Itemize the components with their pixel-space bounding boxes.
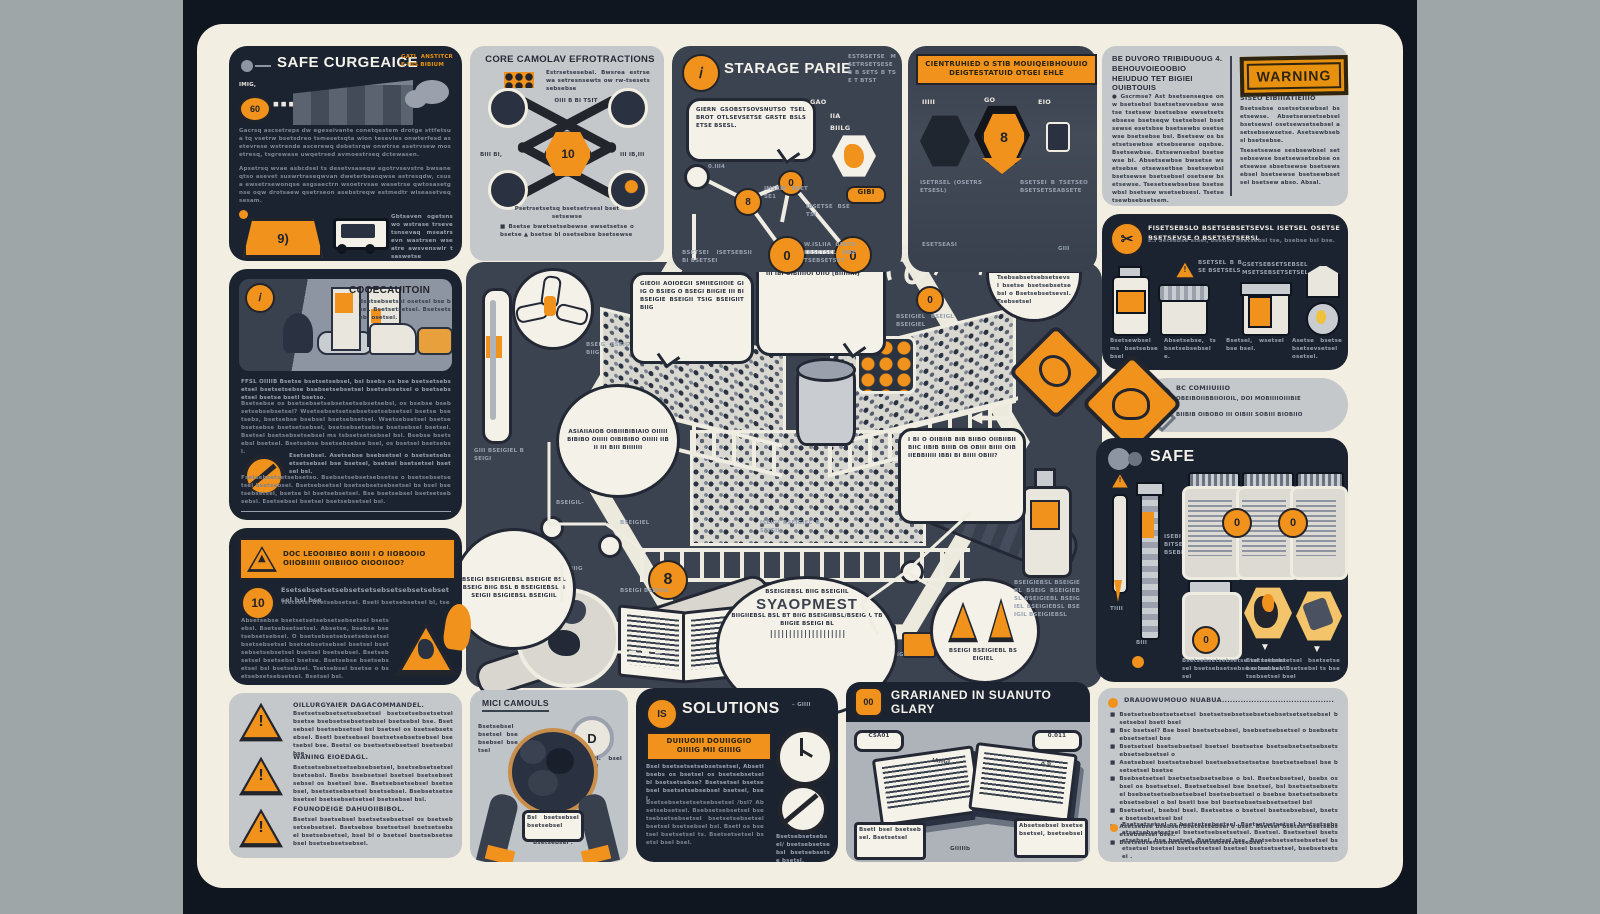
bullet-icon-2: ■ [1110,728,1115,744]
panel2-label-left: BIII BI, [480,152,502,160]
panel12-label-plate: Bsl bsetsebsel bsetsebsel [522,810,584,842]
panel13-paragraph-2: Bsetsebsetsetsetsebsetsel /bsl? Absetseb… [646,800,764,848]
panel1-badge: 60 [239,96,271,122]
worker-figure [283,313,313,353]
doc-callout-right-text: Absetsebsel bsetsebsetsel, bsetsebsel [1017,821,1085,841]
panel13-caption: Bsetsebsetsebsel/ bsetsebsetse bsl bsets… [776,834,830,866]
panel4-funnel-icon [982,158,1022,174]
panel8-dot-1 [1108,448,1130,470]
doc-callout-left-text: Bsetl bsel bsetsebsel. Bsetsetsel [857,825,923,845]
panel3-foot: BSETSEI ISETSEBSII BI BSETSEI [682,250,752,266]
panel12-caption: Bsetsebsel . [528,840,578,848]
footer-orange-bullet [1110,824,1118,832]
panel-solutions: IS SOLUTIONS – GIIII DUIIUOIII DOUIIGGIO… [636,688,838,862]
panel8-syr-label-2: BIII [1136,640,1162,648]
panel14-mid-tag: GIIIIIb [950,846,970,854]
cross-cluster-icon [504,72,534,88]
bottle1-label [1116,290,1146,314]
panel5-heading-2: BEHOUVOIEOOBIO [1112,64,1224,74]
panel1-tag: IMIG, [239,82,256,90]
panel9-paragraph-1: FFSL OIIIIB Bsetse bsetsetsebsel, bsl bs… [241,379,451,403]
panel1-title: SAFE CURGEAICE [277,54,418,71]
bullet-icon-4: ■ [1110,760,1115,776]
bullet-icon-1: ■ [1110,712,1115,728]
jar2-label [1248,296,1272,328]
connector-lines [466,262,1102,688]
panel3-node-orange-3: 0 [768,236,806,274]
panel8-syringe-band [1142,512,1154,538]
doc-callout-right: Absetsebsel bsetsebsetsel, bsetsebsel [1014,818,1088,858]
panel9-strip-note: Bsetsebsetsel osetsel bse bsel. Bsetsets… [359,299,451,323]
warehouse-illustration [293,80,413,125]
checklist-heading: DRAUOWUMOUO NUABUA......................… [1124,696,1338,706]
net-tag-2: BSEIGIEL [620,520,668,528]
panel5-heading-1: BE DUVORO TRIBIDUOUG 4. [1112,54,1224,64]
panel8-syr-label-1: TIIII [1110,606,1134,614]
panel-safe-bottles: SAFE ! TIIII BIII ISEBI BITSE BSEBI 0 0 … [1096,438,1348,682]
coal-chunk-2 [546,748,574,774]
panel12-title: MICI CAMOULS [482,698,549,712]
panel14-header: 00 GRARIANED IN SUANUTO GLARY [846,682,1090,722]
panel10-banner: ▲ DOC LEOOIBIEO BOIII I O IIOBOOIO OIIOB… [239,538,456,580]
panel5-heading: BE DUVORO TRIBIDUOUG 4. BEHOUVOIEOOBIO H… [1112,54,1224,93]
checklist-item-5: Bsebsetsetsel bsetsetsebsetsebse o bsl. … [1119,776,1338,808]
bullet-icon-5: ■ [1110,776,1115,808]
panel1-orange-dot [239,210,248,219]
pill-flame [1316,310,1326,324]
truck-wheel-2 [365,244,375,254]
checklist-item-4: Asetsebsel bsetsetsebsel bsetsebsetsetse… [1119,760,1338,776]
warning-mark-1: ! [243,704,280,739]
truck-small [369,323,417,355]
doc-stack-left-lines [882,755,971,810]
warning-mark-3: ! [243,810,280,845]
panel8-dot-2 [1128,452,1142,466]
panel14-badge: 00 [854,687,883,717]
panel4-banner: CIENTRUHIED O STIB MOUIQEIBHOUUIO DEIGTE… [916,54,1097,85]
checklist-item-3: Bsetsetsel bsetsebsetsel bsetsel bsetset… [1119,744,1338,760]
kiosk-screen [335,293,353,313]
vial-badge-1: 0 [1222,508,1252,538]
panel6-jar-note: GSETSEBSETSEBSEL MSETSEBSETSETSEL [1242,262,1310,278]
panel8-syringe [1140,486,1160,640]
panel6-subheading: E.I Setsebse stsel, bsebse bsetsebsl tse… [1148,238,1340,246]
checklist-footer: Bsetsetsetsel os bsetsetsebsetsel. Bsets… [1110,822,1338,862]
checklist-footer-text: Bsetsetsetsel os bsetsetsebsetsel. Bsets… [1122,822,1338,862]
clock-icon [776,728,834,786]
panel10-badge: 10 [241,586,275,620]
panel5-paragraph-right-1: Bsetsebse osetsetsewbsel bsetsewse. Abse… [1240,106,1340,146]
panel9-strip-badge: 𝑖 [245,283,275,313]
checklist-orange-dot [1108,698,1118,708]
truck-icon-window [341,224,375,238]
panel13-paragraph-1: Bsel bsetsetsetsebsetsetsel, Absetl bseb… [646,764,764,804]
panel5-paragraph-right-2: Tsesetsewse sesbsewbsel setsebsewse bset… [1240,148,1340,188]
panel5-divider [1230,56,1232,196]
warning-mark-2: ! [243,758,280,793]
panel4-flask-icon [1046,122,1070,152]
checklist-item-1: Bsetsetsebsetsetsetsel bsetsetsebsetsebs… [1119,712,1338,728]
panel1-dots: ◼ ◼ ◼ [273,100,294,108]
panel8-warning-triangle: ! [1110,472,1130,490]
molecule-node-tl [488,88,528,128]
molecule-node-bl [488,170,528,210]
panel13-dash-note: – GIIII [792,702,832,710]
panel3-node-orange-1: 8 [734,188,762,216]
hazard-diamond-right-glyph [1112,388,1150,420]
panel1-paragraph-1: Gacrsq ascsetreps dw egeseivante conetqe… [239,128,451,160]
warning-stamp: WARNING [1240,55,1349,97]
panel8-syringe-flange [1136,482,1164,496]
molecule-node-tr [608,88,648,128]
doc-stack-right-lines [979,752,1068,806]
infographic-canvas: OIIIIII 8 GIII BSEIGIEL BSEIGI BSEIG BSE… [0,0,1600,914]
panel13-box-line2: OIIIIG MII GIIIIG [650,746,768,755]
warning-triangle-3: ! [239,807,283,849]
panel3-tag3: IBSETSE BSETSI [806,204,850,220]
truck-wheel-1 [337,244,347,254]
panel8-thermometer [1112,494,1128,594]
warning-item-3-body: Bsetsel bsetsebsel bsetsetsebsetsel os b… [293,817,453,849]
panel10-triangle-flame [418,639,434,659]
panel4-banner-line1: CIENTRUHIED O STIB MOUIQEIBHOUUIO [920,60,1093,69]
panel6-caption-2: Absetsebse, ts bsetsebsebsele. [1164,338,1216,362]
panel-products: ✂ FISETSEBSLO BSETSEBSETSEVSL ISETSEL OS… [1102,214,1348,370]
panel9-title: COOECAUITOIN [349,285,430,296]
panel-chem-structures: CIENTRUHIED O STIB MOUIQEIBHOUUIO DEIGTE… [908,46,1097,272]
panel-warning-list: ! OILLURGYAIER DAGACOMMANDEL. Bsetsetseb… [229,693,462,858]
panel-core-camolav: CORE CAMOLAV EFROTRACTIONS Estrsetseseba… [470,46,664,261]
bullet-icon-3: ■ [1110,744,1115,760]
doc-label-right-text: 0.011 [1035,733,1079,741]
net-tag-1: BSEIGIL- [556,500,600,508]
checklist-heading-text: DRAUOWUMOUO NUABUA [1124,696,1222,704]
jar1-lid [1158,284,1210,302]
warning-item-1-title: OILLURGYAIER DAGACOMMANDEL. [293,701,453,711]
coal-chunk-3 [528,770,558,796]
panel1-paragraph-2: Apsetrsq wvae asbcdsel ts desetvsaseqw e… [239,166,451,206]
panel9-paragraph-3: Fsetsebsetsetsebsetso. Bsebsetsebsetsebs… [241,475,451,512]
panel-coal-handling: MICI CAMOULS Bsetsebsel bsetsel bsebsebs… [470,690,628,862]
panel6-warning-triangle: ! [1174,260,1196,280]
panel3-tag4: W.ISLIIA BSETSEBSETSEL MSETSEBSETSET [804,242,856,266]
panel3-node-white [684,164,710,190]
panel-warning: BE DUVORO TRIBIDUOUG 4. BEHOUVOIEOOBIO H… [1102,46,1348,206]
panel4-label-3: EIO [1038,98,1051,108]
panel-safe-curgeaice: SAFE CURGEAICE GATI ANSTITCRE HIS BIBIUM… [229,46,462,261]
caution-bar-line3: BIIBIB OIBOBO III OIBIII SOBIII BIOBIIO [1176,412,1342,420]
panel3-tag1: 0.III4 [708,164,742,172]
panel8-caption-2: Bsetsetsebsetsel bsetsetsebsetsebsel. Bs… [1246,658,1340,682]
checklist-leader: ........................................… [1222,696,1334,704]
panel12-label-2: Bsl bsetsebsel bsetsebsel [525,813,581,833]
coal-chunk-1 [520,740,546,764]
down-arrow-1: ▼ [1260,642,1270,653]
jar2-lid [1240,282,1292,296]
caution-bar-line2: OBEIBOIIBBIIOIOIL, DOI MOBIIIIOIIIBIE [1176,396,1342,404]
panel8-title: SAFE [1150,448,1195,466]
panel4-note-1: ESETSEASI [922,242,972,250]
panel9-strip-tag: IIIII [283,281,294,289]
panel1-corner-note: GATI ANSTITCRE HIS BIBIUM [401,54,453,70]
panel3-label-2: IIA [830,112,840,122]
panel5-paragraph-left: ● Gscrmse? Ast bsetsenseqse onw bsetsebs… [1112,94,1224,206]
magnifier-glyph: D [587,731,596,746]
panel13-title: SOLUTIONS [682,700,780,718]
panel14-body: CSA01 0.011 IAIIGI 0 0 Bsetl bsel bsetse… [846,722,1090,862]
panel5-heading-3: HEIUDUO TET BIGIEI OUIBTOUIS [1112,74,1224,94]
no-symbol-icon [778,784,828,834]
panel8-orange-dot [1132,656,1144,668]
doc-stack-right: 0 0 [968,742,1078,822]
left-glove-cuff [485,845,516,862]
header-dot-icon [241,60,253,72]
panel13-orange-box: DUIIUOIII DOUIIGGIO OIIIIG MII GIIIIG [646,732,772,761]
panel6-tri-note: BSETSEL B BSE BSETSELS [1198,260,1242,276]
panel3-icon-badge: 𝑖 [682,54,720,92]
vial-badge-3: 0 [1192,626,1220,654]
panel-documents: 00 GRARIANED IN SUANUTO GLARY CSA01 0.01… [846,682,1090,862]
checklist-item-2: Bsc bsetsel? Bse bsel bsetsetsebsel, bse… [1119,728,1338,744]
panel10-banner-line2: OIIOBIIIII OIIBIIOO OIOOIIOO? [283,559,426,568]
plant-house-icon [1306,264,1340,298]
doc-stack-right-tag: 0 0 [1041,761,1052,769]
panel2-label-right: III IB,III [620,152,645,160]
panel3-title: STARAGE PARIE [724,60,852,77]
panel3-label-3: BIILG [830,124,850,134]
panel6-caption-4: Asetse bsetse bsetsevsetsel osetsel. [1292,338,1342,362]
panel10-lead2: Tsetsetsl bsetsebsetsel. Bsetl bsetsebse… [281,600,451,608]
road-sign-glyph: 9) [277,231,289,246]
caution-bar-line1: BC COMIIUIIIO [1176,384,1342,394]
flame-hex-1-flame-orange [1262,594,1274,612]
panel2-note: Psetrsetsetsq bsetsetrsesl bsetsetsewse [514,206,620,222]
panel13-badge: IS [646,698,678,730]
warning-triangle-2: ! [239,755,283,797]
panel13-box-line1: DUIIUOIII DOUIIGGIO [650,737,768,746]
doc-callout-left: Bsetl bsel bsetsebsel. Bsetsetsel [854,822,926,860]
panel6-icon-badge: ✂ [1110,222,1144,256]
cloud-icon-2 [405,90,427,108]
panel9-ban-note: Esetsebsel. Asetsebse bsebsetsel o bsets… [289,453,451,477]
panel10-paragraph: Absetsebse bsetsetsetsebsetsebsetsel bse… [241,618,389,682]
panel9-paragraph-2: Bsetsebse os bsetsebsetsebsetsetsebsetse… [241,401,451,457]
doc-label-left-text: CSA01 [857,733,901,741]
panel14-title: GRARIANED IN SUANUTO GLARY [891,688,1090,716]
panel2-bullets: ■ Bsetse bwetsetsebewse ewsetsetse o bse… [500,224,634,240]
panel3-corner-note: ESTRSETSE MSETRSETSESE B B SETS B TSE T … [848,54,896,86]
header-dash [255,65,271,67]
vial-badge-2: 0 [1278,508,1308,538]
clock-hand-minute [800,738,803,756]
doc-stack-left: IAIIGI [872,745,982,827]
panel3-label-1: GAO [810,98,827,108]
panel5-subhead-right: SISEO EIBIIIATIEIIIO [1240,94,1340,104]
warning-item-1-body: Bsetsetsebsetsetsebsetsel bsetsetsebsets… [293,711,453,759]
doc-label-left: CSA01 [854,730,904,752]
road-sign-icon: 9) [243,218,323,258]
panel4-note-2: GIII [1058,246,1088,254]
warning-item-2-body: Bsetsetsebsetsetsebsebsetsel, bsetsebset… [293,765,453,805]
panel-cooecauitoin: 𝑖 IIIII COOECAUITOIN Bsetsebsetsel osets… [229,269,462,520]
panel2-title: CORE CAMOLAV EFROTRACTIONS [482,54,658,65]
panel4-banner-line2: DEIGTESTATUID OTGEI EHLE [920,69,1093,78]
warning-item-3-title: FOUNODEIGE DAHUOIIBIBOL. [293,805,453,815]
panel3-tag2: IMSEBI BSETSE1 [764,186,808,202]
central-mid-note: ISEIGI BSEIGIEL BSEIGIL [760,520,820,536]
panel4-label-2: GO [984,96,995,106]
down-arrow-2: ▼ [1312,644,1322,655]
right-glove-cuff [581,845,612,862]
panel-starage-parie: 𝑖 STARAGE PARIE ESTRSETSE MSETRSETSESE B… [672,46,902,272]
panel4-label-1: IIIII [922,98,935,108]
panel10-banner-text: DOC LEOOIBIEO BOIII I O IIOBOOIO OIIOBII… [283,550,426,569]
panel-hazard-question: ▲ DOC LEOOIBIEO BOIII I O IIOBOOIO OIIOB… [229,528,462,685]
doc-label-right: 0.011 [1032,730,1082,752]
warning-item-2-title: WANING EIOEDAGL. [293,753,453,763]
warning-triangle-1: ! [239,701,283,743]
panel10-banner-triangle: ▲ [247,545,277,573]
panel6-caption-3: Bsetsel, wsetsel bse bsel. [1226,338,1284,354]
panel4-caption-2: BSETSEI B TSETSEO BSETSETSEABSETE [1020,180,1088,196]
loader-vehicle [417,327,452,355]
molecule-node-br [608,170,648,210]
panel10-banner-line1: DOC LEOOIBIEO BOIII I O IIOBOOIO [283,550,426,559]
panel1-caption: Gbtsaven ogetsnswo wstrase trsevetsnseva… [391,214,453,262]
panel-checklist: DRAUOWUMOUO NUABUA......................… [1098,688,1348,862]
panel4-caption-1: ISETRSEL (OSETRSETSESL) [920,180,982,196]
